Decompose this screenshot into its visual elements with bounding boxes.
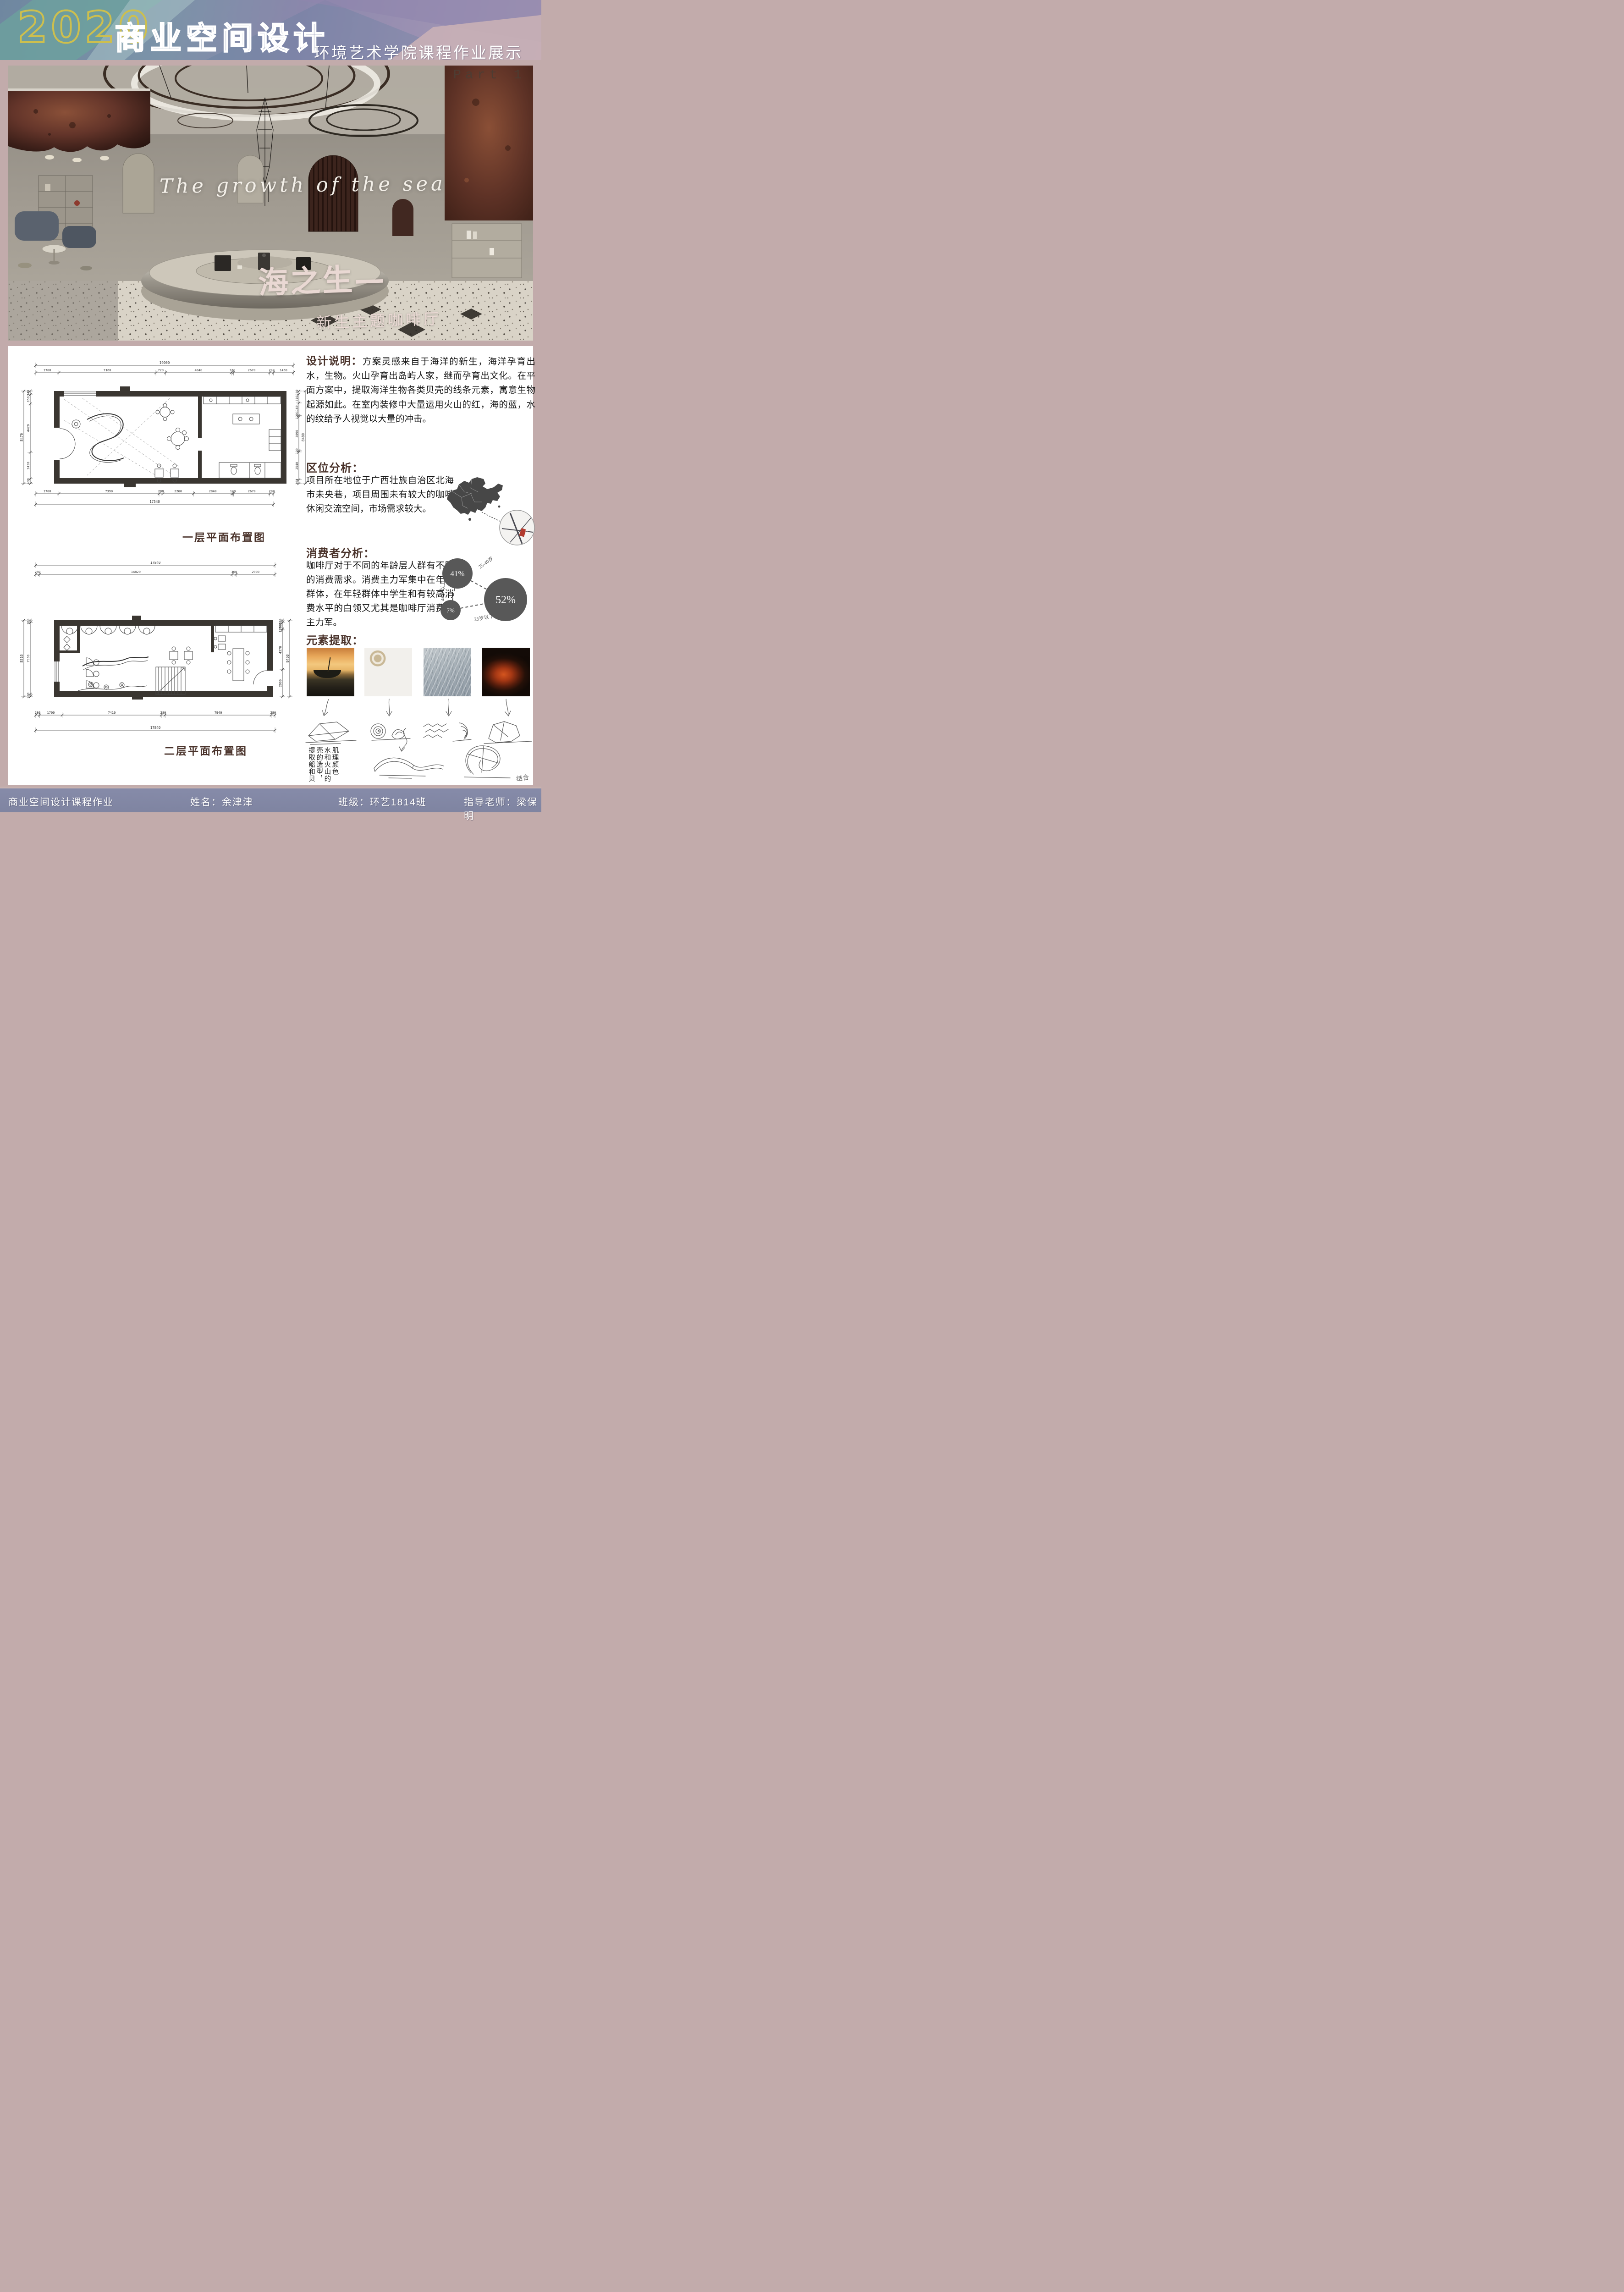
location-heading: 区位分析： (306, 459, 363, 475)
svg-text:1700: 1700 (44, 369, 51, 372)
svg-text:850: 850 (27, 397, 30, 402)
svg-text:170: 170 (230, 369, 236, 372)
arrow-down-icon (443, 698, 455, 719)
footer-name: 姓名：余津津 (190, 795, 253, 809)
elements-heading: 元素提取： (306, 631, 363, 647)
part-label: Part 1 (453, 67, 526, 83)
svg-text:17540: 17540 (149, 500, 160, 504)
svg-text:120: 120 (279, 627, 282, 633)
svg-text:280: 280 (27, 693, 30, 699)
svg-text:280: 280 (35, 711, 41, 715)
design-heading: 设计说明： (306, 355, 363, 367)
china-map: SITE (441, 474, 538, 546)
bubble-value-2: 52% (495, 594, 516, 606)
hero-english-title: The growth of the sea (160, 172, 446, 198)
svg-text:280: 280 (295, 390, 299, 396)
svg-text:2670: 2670 (248, 369, 256, 372)
svg-text:7940: 7940 (215, 711, 222, 715)
footer-teacher: 指导老师：梁保明 (464, 795, 541, 822)
svg-text:280: 280 (269, 369, 275, 372)
floor-plan-1: 1900017007160720484017026702801460170073… (18, 361, 307, 517)
plan1-label: 一层平面布置图 (182, 529, 266, 544)
bubble-label-3: 40岁以上 (439, 581, 446, 601)
svg-text:120: 120 (230, 490, 236, 493)
content-panel: 1900017007160720484017026702801460170073… (8, 346, 533, 785)
svg-text:280: 280 (270, 711, 276, 715)
svg-text:1700: 1700 (44, 490, 51, 493)
element-image-volcano-lava (482, 648, 530, 696)
svg-text:2840: 2840 (209, 490, 217, 493)
svg-text:2990: 2990 (252, 570, 259, 574)
location-body: 项目所在地位于广西壮族自治区北海市未央巷，项目周围未有较大的咖啡休闲交流空间，市… (306, 474, 454, 517)
hero-render: Part 1 The growth of the sea 海之生— 新生主题咖啡… (8, 66, 533, 341)
svg-text:4420: 4420 (27, 424, 30, 432)
consumer-bubble-chart: 41% 52% 7% 25-40岁 40岁以上 25岁以下 (432, 551, 540, 627)
footer-class: 班级：环艺1814班 (338, 795, 427, 809)
svg-text:2670: 2670 (248, 490, 256, 493)
svg-text:2540: 2540 (295, 462, 299, 470)
poster-title: 商业空间设计 (115, 13, 329, 58)
consumer-heading: 消费者分析： (306, 544, 375, 560)
svg-text:4370: 4370 (279, 646, 282, 654)
svg-text:7410: 7410 (108, 711, 116, 715)
svg-text:280: 280 (27, 618, 30, 624)
svg-text:1700: 1700 (47, 711, 55, 715)
arrow-down-icon (500, 697, 515, 720)
combine-label: 结合 (516, 772, 530, 783)
svg-text:1460: 1460 (280, 369, 287, 372)
svg-text:7160: 7160 (104, 369, 111, 372)
design-description: 设计说明：方案灵感来自于海洋的新生，海洋孕育出水，生物。火山孕育出岛屿人家，继而… (306, 353, 535, 427)
bubble-label-2: 25岁以下 (473, 613, 495, 623)
plan1-furniture (60, 391, 281, 482)
svg-text:7950: 7950 (27, 655, 30, 662)
svg-text:280: 280 (35, 570, 41, 574)
element-image-sunset-fishing-boat (307, 648, 354, 696)
svg-text:360: 360 (295, 479, 299, 485)
svg-text:300: 300 (231, 570, 237, 574)
svg-text:810: 810 (295, 396, 299, 402)
svg-text:1160: 1160 (295, 405, 299, 413)
svg-text:280: 280 (160, 711, 166, 715)
plan2-dimensions: 1784028014820300299028017007410280794028… (20, 562, 292, 733)
svg-text:17840: 17840 (150, 562, 161, 565)
floor-plan-2: 1784028014820300299028017007410280794028… (18, 562, 307, 745)
element-image-water-ripples (424, 648, 471, 696)
svg-text:17840: 17840 (150, 726, 161, 730)
svg-text:4840: 4840 (195, 369, 203, 372)
sketch-wave-counter (370, 748, 453, 782)
svg-text:2990: 2990 (279, 679, 282, 687)
svg-text:280: 280 (269, 490, 275, 493)
svg-text:3090: 3090 (295, 430, 299, 438)
svg-text:8480: 8480 (301, 433, 305, 441)
hero-chinese-title: 海之生— (257, 254, 387, 303)
design-body: 方案灵感来自于海洋的新生，海洋孕育出水，生物。火山孕育出岛屿人家，继而孕育出文化… (306, 357, 535, 424)
header-band: 2020 商业空间设计 环境艺术学院课程作业展示 (0, 0, 541, 60)
element-image-seashells (364, 648, 412, 696)
hero-chinese-subtitle: 新生主题咖啡厅 (316, 306, 442, 332)
extraction-note: 提取船和贝壳的造型，水和火山的肌理颜色 (307, 747, 338, 785)
svg-text:8460: 8460 (286, 654, 290, 663)
plan1-dimensions: 1900017007160720484017026702801460170073… (20, 361, 307, 507)
arrow-down-icon (317, 697, 335, 720)
svg-text:19000: 19000 (160, 361, 170, 365)
svg-text:7390: 7390 (105, 490, 113, 493)
svg-text:120: 120 (295, 448, 299, 454)
consumer-body: 咖啡厅对于不同的年龄层人群有不同的消费需求。消费主力军集中在年轻群体，在年轻群体… (306, 559, 454, 630)
svg-text:720: 720 (158, 369, 164, 372)
svg-text:14820: 14820 (131, 570, 141, 574)
bubble-value-3: 7% (446, 607, 455, 614)
sketch-boat (304, 718, 359, 745)
plan2-label: 二层平面布置图 (164, 742, 248, 758)
svg-text:430: 430 (27, 479, 30, 485)
bubble-value-1: 41% (450, 569, 464, 578)
svg-text:2430: 2430 (27, 462, 30, 469)
footer-bar: 商业空间设计课程作业 姓名：余津津 班级：环艺1814班 指导老师：梁保明 (0, 787, 541, 812)
svg-text:280: 280 (158, 490, 164, 493)
svg-text:8510: 8510 (20, 654, 24, 663)
svg-text:8470: 8470 (20, 433, 24, 441)
bubble-label-1: 25-40岁 (477, 555, 495, 570)
poster-page: { "header": { "year": "2020", "title": "… (0, 0, 541, 812)
svg-text:340: 340 (27, 390, 30, 396)
svg-text:2260: 2260 (174, 490, 182, 493)
plan2-furniture (55, 626, 267, 694)
svg-text:120: 120 (295, 413, 299, 419)
footer-course: 商业空间设计课程作业 (8, 795, 114, 809)
poster-subtitle: 环境艺术学院课程作业展示 (314, 40, 523, 60)
arrow-down-icon (383, 698, 395, 719)
